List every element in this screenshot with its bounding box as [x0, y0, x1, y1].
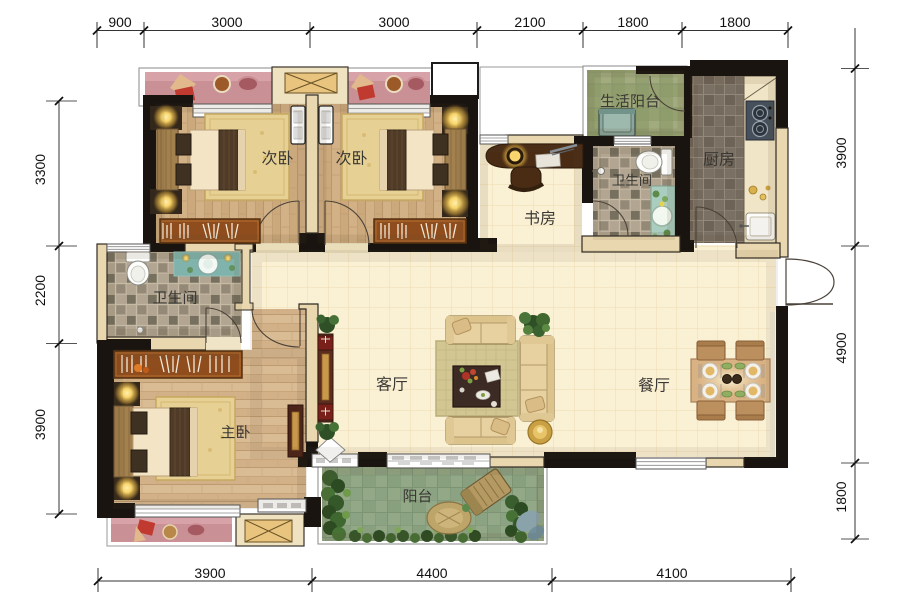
svg-text:2200: 2200 — [32, 275, 48, 306]
svg-text:4900: 4900 — [833, 332, 849, 363]
svg-text:1800: 1800 — [617, 14, 648, 30]
svg-text:3900: 3900 — [32, 409, 48, 440]
svg-text:3000: 3000 — [211, 14, 242, 30]
svg-text:4100: 4100 — [656, 565, 687, 581]
svg-text:2100: 2100 — [514, 14, 545, 30]
svg-text:1800: 1800 — [719, 14, 750, 30]
svg-text:900: 900 — [108, 14, 132, 30]
svg-text:3000: 3000 — [378, 14, 409, 30]
svg-text:3300: 3300 — [32, 154, 48, 185]
svg-text:1800: 1800 — [833, 481, 849, 512]
svg-text:3900: 3900 — [833, 137, 849, 168]
svg-text:3900: 3900 — [194, 565, 225, 581]
svg-text:4400: 4400 — [416, 565, 447, 581]
